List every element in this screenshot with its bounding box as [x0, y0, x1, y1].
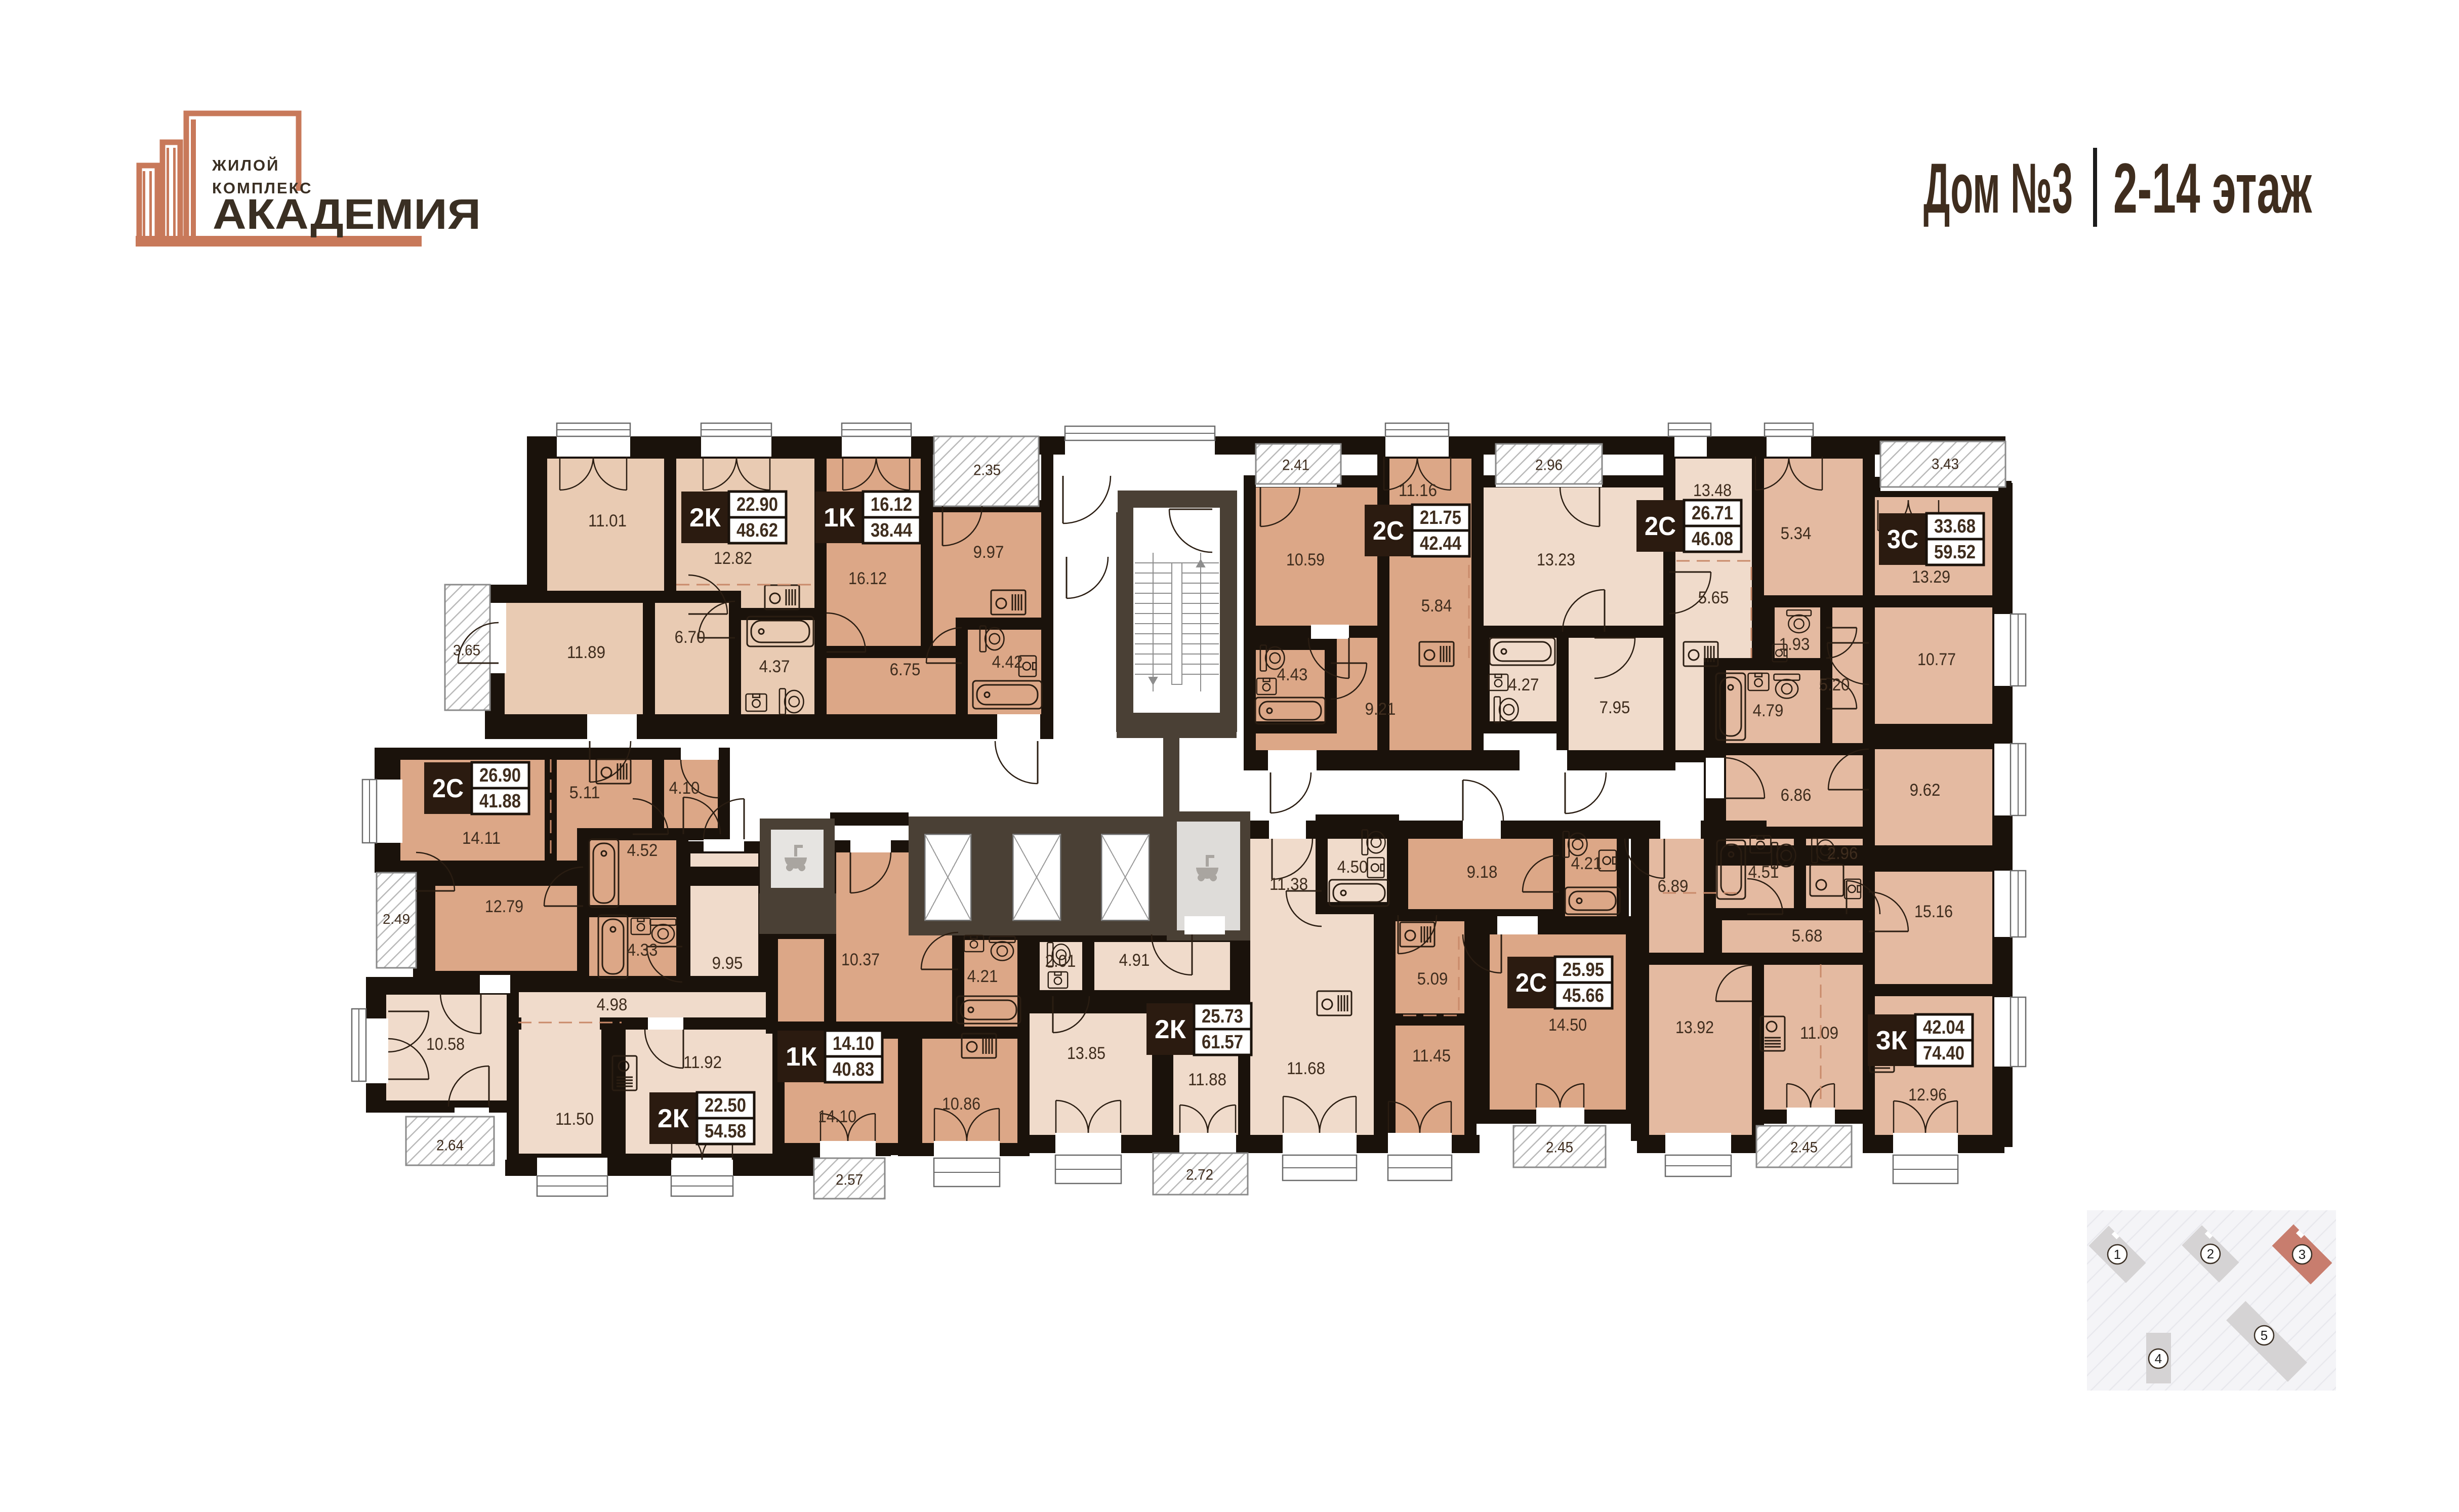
svg-text:2.41: 2.41 — [1282, 457, 1309, 474]
svg-text:4.42: 4.42 — [992, 652, 1023, 672]
svg-text:10.86: 10.86 — [942, 1094, 980, 1114]
svg-text:10.77: 10.77 — [1917, 650, 1956, 669]
svg-text:5.68: 5.68 — [1792, 926, 1823, 946]
svg-text:9.97: 9.97 — [973, 543, 1004, 562]
svg-text:1: 1 — [2114, 1247, 2121, 1262]
svg-text:4.91: 4.91 — [1119, 951, 1150, 970]
svg-text:2: 2 — [2207, 1246, 2214, 1261]
svg-text:11.92: 11.92 — [683, 1053, 722, 1072]
svg-text:9.18: 9.18 — [1467, 863, 1498, 882]
svg-text:2К: 2К — [1155, 1015, 1186, 1044]
svg-text:1.93: 1.93 — [1779, 635, 1810, 654]
svg-text:5.34: 5.34 — [1781, 524, 1812, 543]
svg-text:4.33: 4.33 — [627, 941, 658, 960]
svg-text:2-14 этаж: 2-14 этаж — [2113, 148, 2312, 228]
svg-text:АКАДЕМИЯ: АКАДЕМИЯ — [213, 190, 481, 238]
svg-text:11.50: 11.50 — [555, 1110, 594, 1129]
svg-text:4.43: 4.43 — [1277, 665, 1308, 684]
svg-text:42.04: 42.04 — [1923, 1017, 1964, 1038]
svg-text:2К: 2К — [689, 503, 721, 533]
svg-text:5.65: 5.65 — [1698, 588, 1729, 607]
svg-text:13.92: 13.92 — [1675, 1018, 1714, 1037]
svg-text:48.62: 48.62 — [736, 520, 778, 541]
svg-text:9.21: 9.21 — [1365, 700, 1396, 719]
svg-text:59.52: 59.52 — [1934, 542, 1976, 563]
svg-text:2.72: 2.72 — [1186, 1167, 1213, 1183]
svg-text:26.71: 26.71 — [1692, 503, 1733, 524]
svg-text:4.21: 4.21 — [967, 967, 998, 986]
svg-text:42.44: 42.44 — [1420, 533, 1461, 554]
svg-text:2С: 2С — [432, 774, 464, 803]
svg-text:13.29: 13.29 — [1912, 567, 1950, 587]
svg-text:2.45: 2.45 — [1790, 1139, 1818, 1156]
svg-text:2С: 2С — [1645, 512, 1676, 541]
svg-text:14.11: 14.11 — [462, 829, 501, 848]
svg-text:2.96: 2.96 — [1827, 844, 1858, 863]
svg-text:12.79: 12.79 — [485, 897, 523, 916]
svg-text:14.10: 14.10 — [818, 1107, 856, 1126]
svg-text:16.12: 16.12 — [871, 494, 912, 515]
svg-text:ЖИЛОЙ: ЖИЛОЙ — [212, 156, 279, 174]
svg-text:11.88: 11.88 — [1188, 1070, 1226, 1089]
svg-text:11.68: 11.68 — [1287, 1059, 1325, 1078]
svg-text:2С: 2С — [1515, 968, 1547, 998]
svg-text:2С: 2С — [1373, 516, 1404, 546]
svg-text:25.73: 25.73 — [1202, 1006, 1243, 1027]
svg-text:11.38: 11.38 — [1269, 875, 1308, 894]
svg-text:4: 4 — [2155, 1351, 2162, 1366]
svg-text:7.95: 7.95 — [1600, 698, 1630, 717]
svg-text:1К: 1К — [786, 1042, 817, 1072]
svg-text:2.01: 2.01 — [1045, 952, 1076, 971]
svg-text:12.96: 12.96 — [1908, 1085, 1947, 1105]
svg-text:41.88: 41.88 — [479, 791, 521, 812]
svg-text:2.45: 2.45 — [1546, 1139, 1573, 1156]
svg-text:2.57: 2.57 — [836, 1172, 863, 1189]
svg-text:5.11: 5.11 — [569, 783, 600, 802]
svg-text:9.62: 9.62 — [1910, 781, 1941, 800]
svg-text:22.50: 22.50 — [705, 1095, 746, 1116]
svg-text:3: 3 — [2299, 1247, 2306, 1262]
svg-text:11.09: 11.09 — [1800, 1024, 1838, 1043]
svg-text:11.45: 11.45 — [1412, 1046, 1451, 1066]
svg-text:11.89: 11.89 — [567, 643, 605, 662]
svg-text:9.95: 9.95 — [712, 954, 743, 973]
svg-text:21.75: 21.75 — [1420, 507, 1461, 528]
svg-text:3.65: 3.65 — [453, 642, 480, 659]
svg-text:46.08: 46.08 — [1692, 528, 1733, 550]
svg-text:3К: 3К — [1876, 1026, 1907, 1055]
svg-text:14.10: 14.10 — [833, 1033, 874, 1054]
svg-text:5.84: 5.84 — [1421, 596, 1452, 616]
svg-text:4.21: 4.21 — [1571, 854, 1602, 873]
svg-text:5.09: 5.09 — [1417, 969, 1448, 989]
svg-text:6.70: 6.70 — [675, 628, 706, 647]
svg-text:26.90: 26.90 — [479, 765, 521, 786]
svg-text:4.10: 4.10 — [669, 779, 700, 798]
svg-text:10.59: 10.59 — [1286, 550, 1325, 569]
svg-text:10.58: 10.58 — [426, 1035, 465, 1054]
svg-text:40.83: 40.83 — [833, 1059, 874, 1080]
svg-text:16.12: 16.12 — [848, 569, 887, 588]
svg-text:13.23: 13.23 — [1537, 550, 1575, 569]
svg-text:74.40: 74.40 — [1923, 1043, 1964, 1064]
svg-text:54.58: 54.58 — [705, 1121, 746, 1142]
svg-text:12.82: 12.82 — [714, 549, 752, 568]
svg-text:6.89: 6.89 — [1658, 877, 1689, 896]
svg-text:11.16: 11.16 — [1399, 481, 1437, 500]
svg-text:2.35: 2.35 — [973, 462, 1001, 479]
svg-text:11.01: 11.01 — [588, 511, 627, 530]
svg-text:4.79: 4.79 — [1753, 701, 1784, 720]
svg-text:22.90: 22.90 — [736, 494, 778, 515]
svg-text:45.66: 45.66 — [1563, 985, 1604, 1006]
svg-text:4.98: 4.98 — [597, 995, 628, 1014]
svg-text:15.16: 15.16 — [1914, 902, 1953, 921]
svg-text:2К: 2К — [658, 1104, 689, 1133]
svg-text:4.37: 4.37 — [759, 657, 790, 676]
svg-text:13.48: 13.48 — [1693, 481, 1732, 500]
svg-text:4.51: 4.51 — [1748, 863, 1779, 882]
svg-text:6.75: 6.75 — [890, 660, 921, 679]
svg-text:38.44: 38.44 — [871, 520, 912, 541]
svg-text:4.52: 4.52 — [627, 841, 658, 860]
svg-text:25.95: 25.95 — [1563, 959, 1604, 980]
svg-text:10.37: 10.37 — [841, 950, 880, 969]
svg-text:6.86: 6.86 — [1781, 786, 1812, 805]
svg-text:14.50: 14.50 — [1548, 1015, 1587, 1035]
svg-text:4.50: 4.50 — [1337, 857, 1368, 877]
svg-text:5.20: 5.20 — [1819, 675, 1850, 694]
svg-text:4.27: 4.27 — [1508, 675, 1539, 694]
svg-text:5: 5 — [2261, 1328, 2268, 1343]
svg-text:2.96: 2.96 — [1535, 457, 1563, 474]
svg-text:3.43: 3.43 — [1932, 456, 1959, 473]
svg-text:1К: 1К — [824, 503, 855, 533]
svg-text:33.68: 33.68 — [1934, 516, 1976, 537]
svg-text:13.85: 13.85 — [1067, 1044, 1105, 1063]
svg-text:Дом №3: Дом №3 — [1923, 148, 2073, 228]
svg-text:61.57: 61.57 — [1202, 1032, 1243, 1053]
svg-text:2.49: 2.49 — [383, 911, 410, 927]
svg-text:3С: 3С — [1887, 525, 1918, 554]
svg-text:2.64: 2.64 — [436, 1137, 464, 1154]
